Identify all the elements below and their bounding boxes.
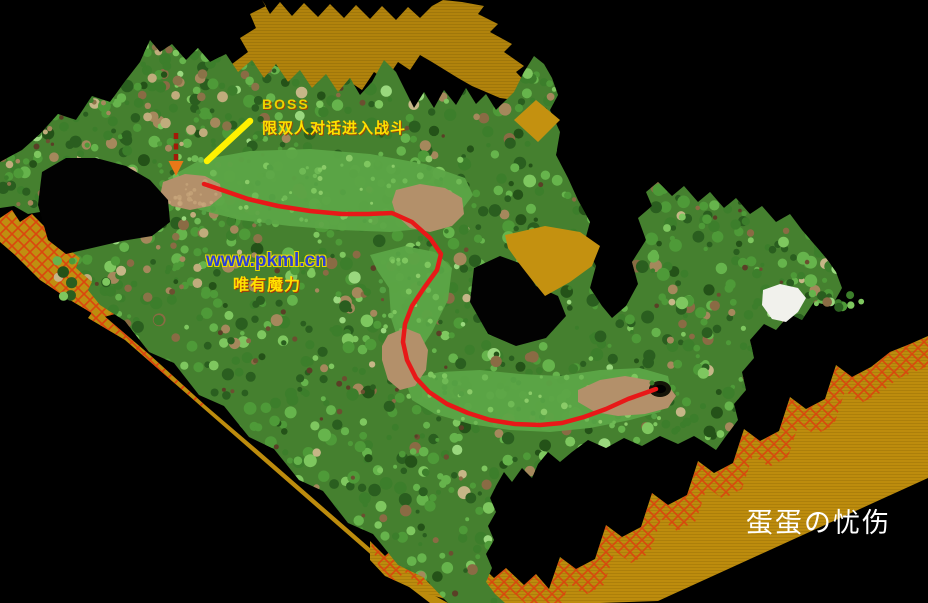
game-map-screenshot: BOSS 限双人对话进入战斗 www.pkml.cn 唯有魔力 蛋蛋の忧伤 xyxy=(0,0,928,603)
site-url-watermark: www.pkml.cn xyxy=(206,251,327,270)
boss-condition-label: 限双人对话进入战斗 xyxy=(262,121,406,136)
boss-label: BOSS xyxy=(262,97,310,111)
site-slogan-label: 唯有魔力 xyxy=(233,278,301,294)
author-watermark: 蛋蛋の忧伤 xyxy=(746,510,891,537)
